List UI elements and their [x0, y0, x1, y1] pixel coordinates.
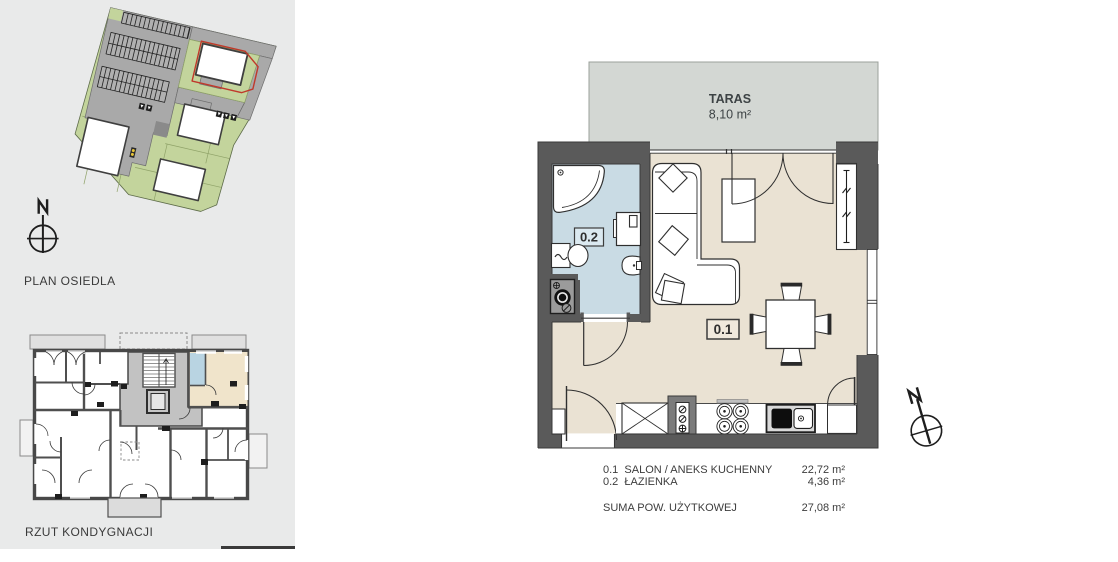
svg-text:4,36 m²: 4,36 m² [808, 476, 846, 488]
svg-text:0.2 ŁAZIENKA: 0.2 ŁAZIENKA [603, 476, 678, 488]
svg-text:TARAS: TARAS [709, 92, 751, 106]
svg-text:SUMA POW. UŻYTKOWEJ: SUMA POW. UŻYTKOWEJ [603, 501, 737, 514]
svg-text:8,10 m²: 8,10 m² [709, 108, 751, 122]
svg-text:RZUT KONDYGNACJI: RZUT KONDYGNACJI [25, 525, 153, 539]
svg-text:0.1: 0.1 [714, 322, 733, 337]
svg-text:0.2: 0.2 [580, 230, 598, 245]
svg-text:PLAN OSIEDLA: PLAN OSIEDLA [24, 274, 116, 288]
svg-text:0.1 SALON / ANEKS KUCHENNY: 0.1 SALON / ANEKS KUCHENNY [603, 464, 773, 476]
svg-text:27,08 m²: 27,08 m² [802, 502, 846, 514]
svg-text:22,72 m²: 22,72 m² [802, 464, 846, 476]
